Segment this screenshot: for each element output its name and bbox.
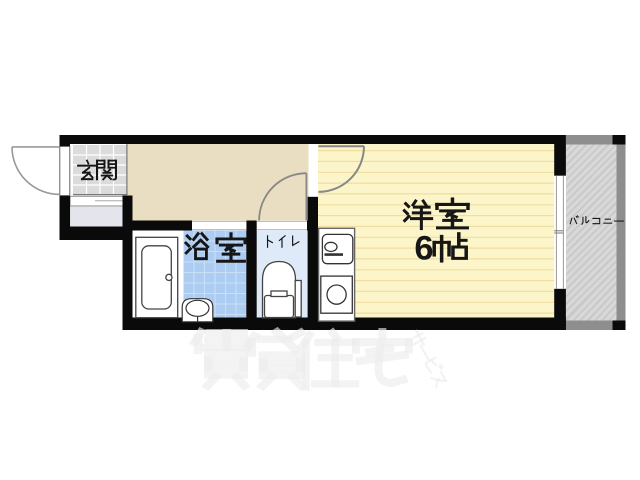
svg-text:6: 6 (414, 230, 433, 268)
